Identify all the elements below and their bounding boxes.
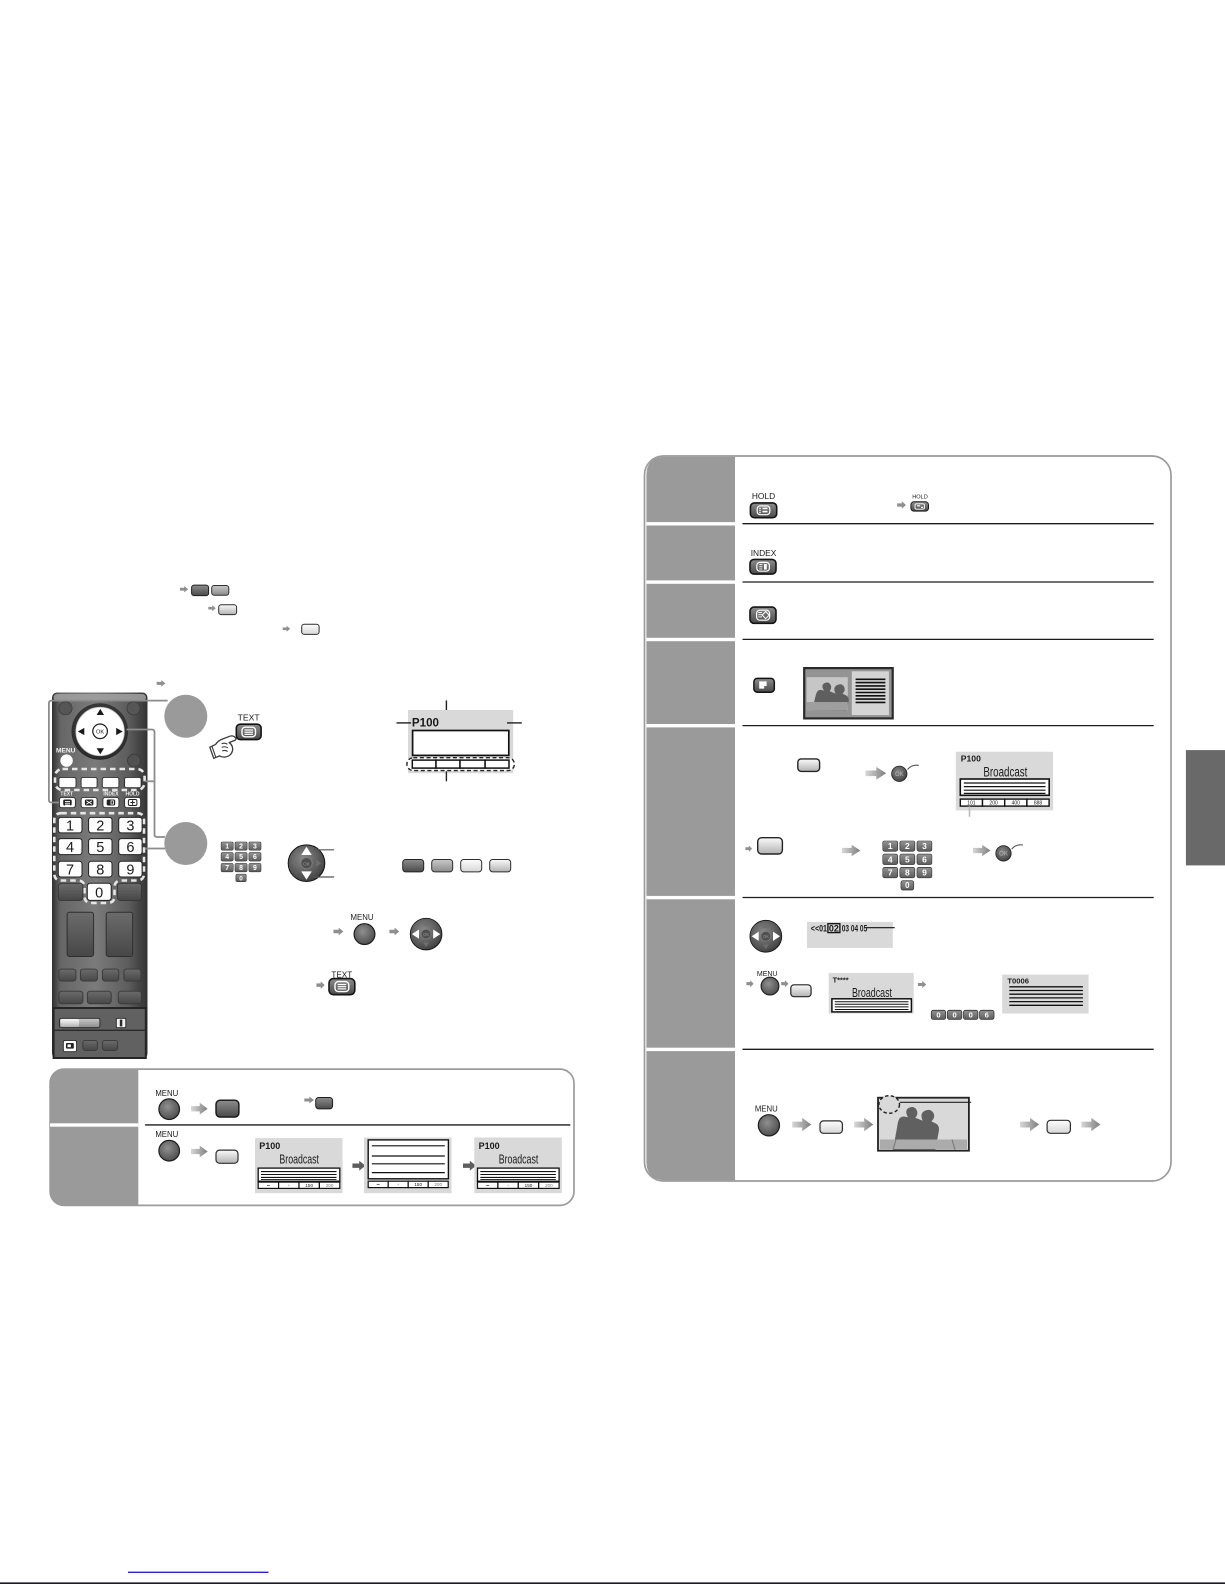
svg-text:TEXT: TEXT (60, 791, 73, 797)
svg-text:3: 3 (126, 818, 134, 834)
svg-text:0: 0 (936, 1010, 940, 1019)
svg-text:5: 5 (96, 840, 104, 856)
svg-text:200: 200 (434, 1182, 442, 1187)
svg-text:0: 0 (95, 886, 103, 902)
svg-text:6: 6 (126, 840, 134, 856)
svg-text:OK: OK (96, 730, 104, 736)
svg-text:T****: T**** (833, 975, 849, 984)
svg-text:P100: P100 (259, 1141, 280, 1151)
svg-text:P100: P100 (412, 716, 439, 729)
svg-text:02: 02 (829, 923, 839, 933)
svg-text:TEXT: TEXT (238, 712, 261, 722)
svg-text:200: 200 (326, 1183, 334, 1188)
svg-text:200: 200 (989, 801, 998, 807)
svg-text:0: 0 (952, 1010, 956, 1019)
svg-text:8: 8 (96, 862, 104, 878)
svg-text:INDEX: INDEX (103, 791, 119, 797)
svg-text:HOLD: HOLD (912, 495, 928, 501)
svg-text:+: + (507, 1183, 510, 1188)
svg-text:HOLD: HOLD (752, 491, 775, 501)
svg-text:9: 9 (126, 862, 134, 878)
svg-text:Broadcast: Broadcast (499, 1152, 539, 1166)
svg-text:6: 6 (985, 1010, 989, 1019)
svg-text:03 04 05: 03 04 05 (842, 923, 867, 933)
svg-text:Broadcast: Broadcast (852, 986, 892, 1000)
svg-text:<<01: <<01 (811, 923, 827, 933)
svg-text:7: 7 (66, 862, 74, 878)
svg-text:MENU: MENU (56, 747, 76, 754)
svg-text:T0006: T0006 (1007, 977, 1029, 986)
svg-text:+: + (397, 1182, 400, 1187)
svg-text:2: 2 (96, 818, 104, 834)
svg-text:0: 0 (969, 1010, 973, 1019)
svg-text:+: + (287, 1183, 290, 1188)
svg-text:1: 1 (66, 818, 74, 834)
svg-text:INDEX: INDEX (751, 548, 777, 558)
svg-text:MENU: MENU (757, 971, 778, 978)
svg-text:P100: P100 (961, 754, 981, 764)
svg-text:101: 101 (967, 801, 976, 807)
svg-text:200: 200 (545, 1183, 553, 1188)
svg-text:MENU: MENU (351, 913, 374, 922)
svg-text:150: 150 (414, 1182, 422, 1187)
svg-text:400: 400 (1012, 801, 1021, 807)
svg-text:HOLD: HOLD (126, 791, 141, 797)
svg-text:4: 4 (66, 840, 74, 856)
svg-text:MENU: MENU (155, 1089, 178, 1098)
svg-text:Broadcast: Broadcast (279, 1152, 319, 1166)
svg-text:888: 888 (1034, 801, 1043, 807)
svg-text:MENU: MENU (755, 1105, 778, 1114)
svg-text:150: 150 (525, 1183, 533, 1188)
svg-text:MENU: MENU (155, 1130, 178, 1139)
svg-text:150: 150 (305, 1183, 313, 1188)
svg-text:Broadcast: Broadcast (983, 765, 1027, 780)
svg-text:P100: P100 (479, 1141, 500, 1151)
